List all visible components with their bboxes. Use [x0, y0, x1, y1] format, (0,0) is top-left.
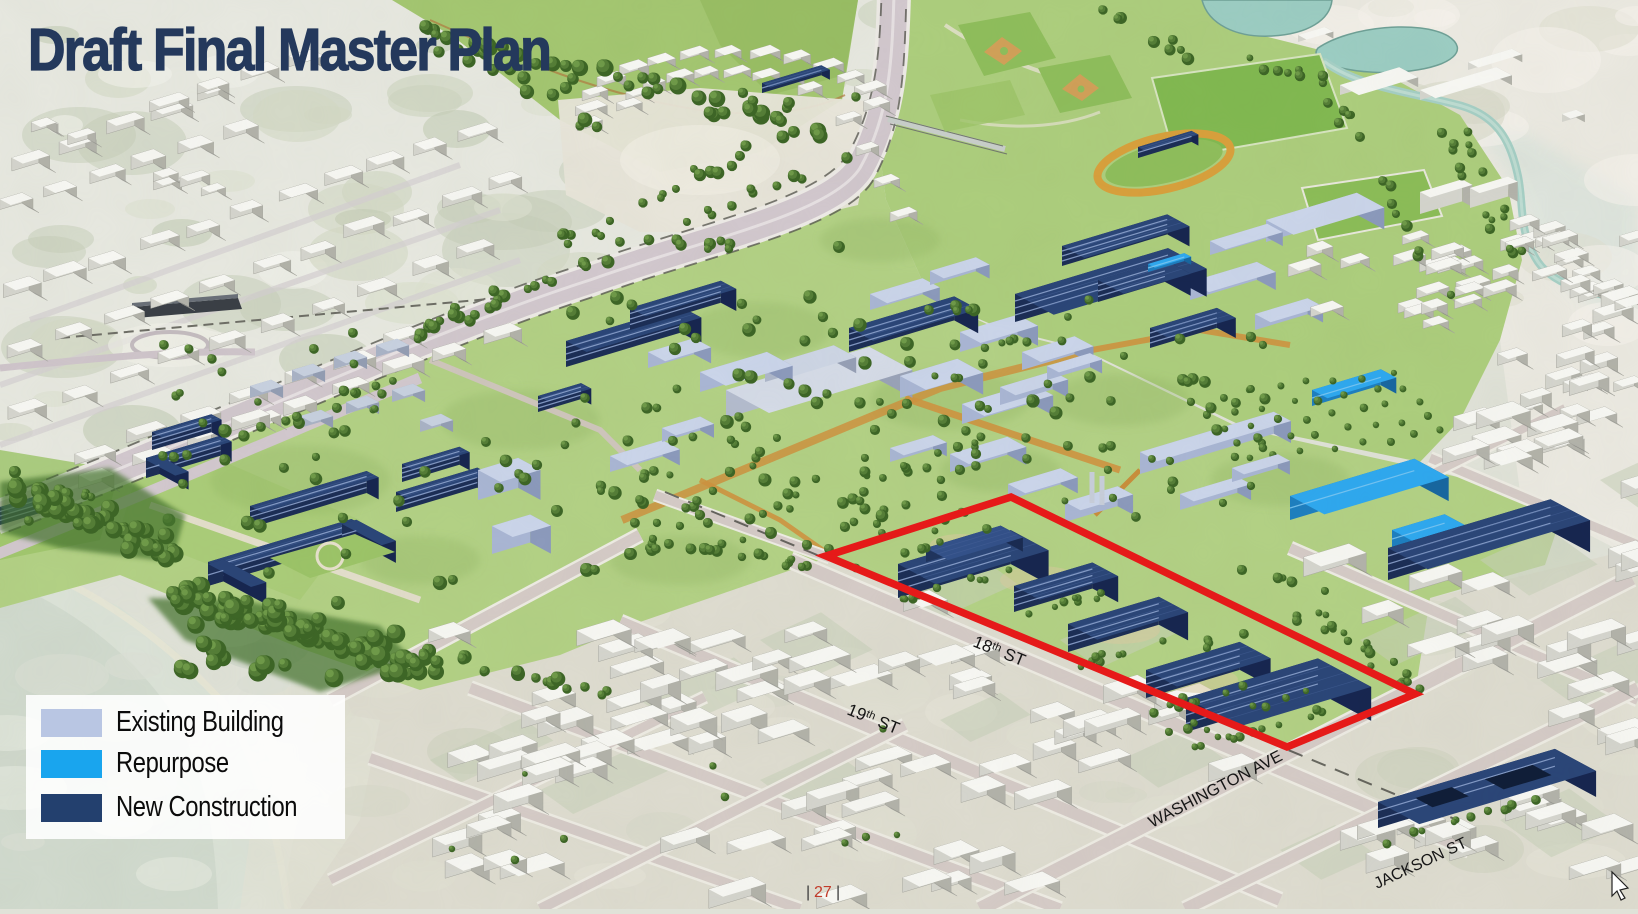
- svg-text:|: |: [836, 884, 840, 901]
- svg-text:|: |: [806, 884, 810, 901]
- svg-text:27: 27: [814, 884, 832, 901]
